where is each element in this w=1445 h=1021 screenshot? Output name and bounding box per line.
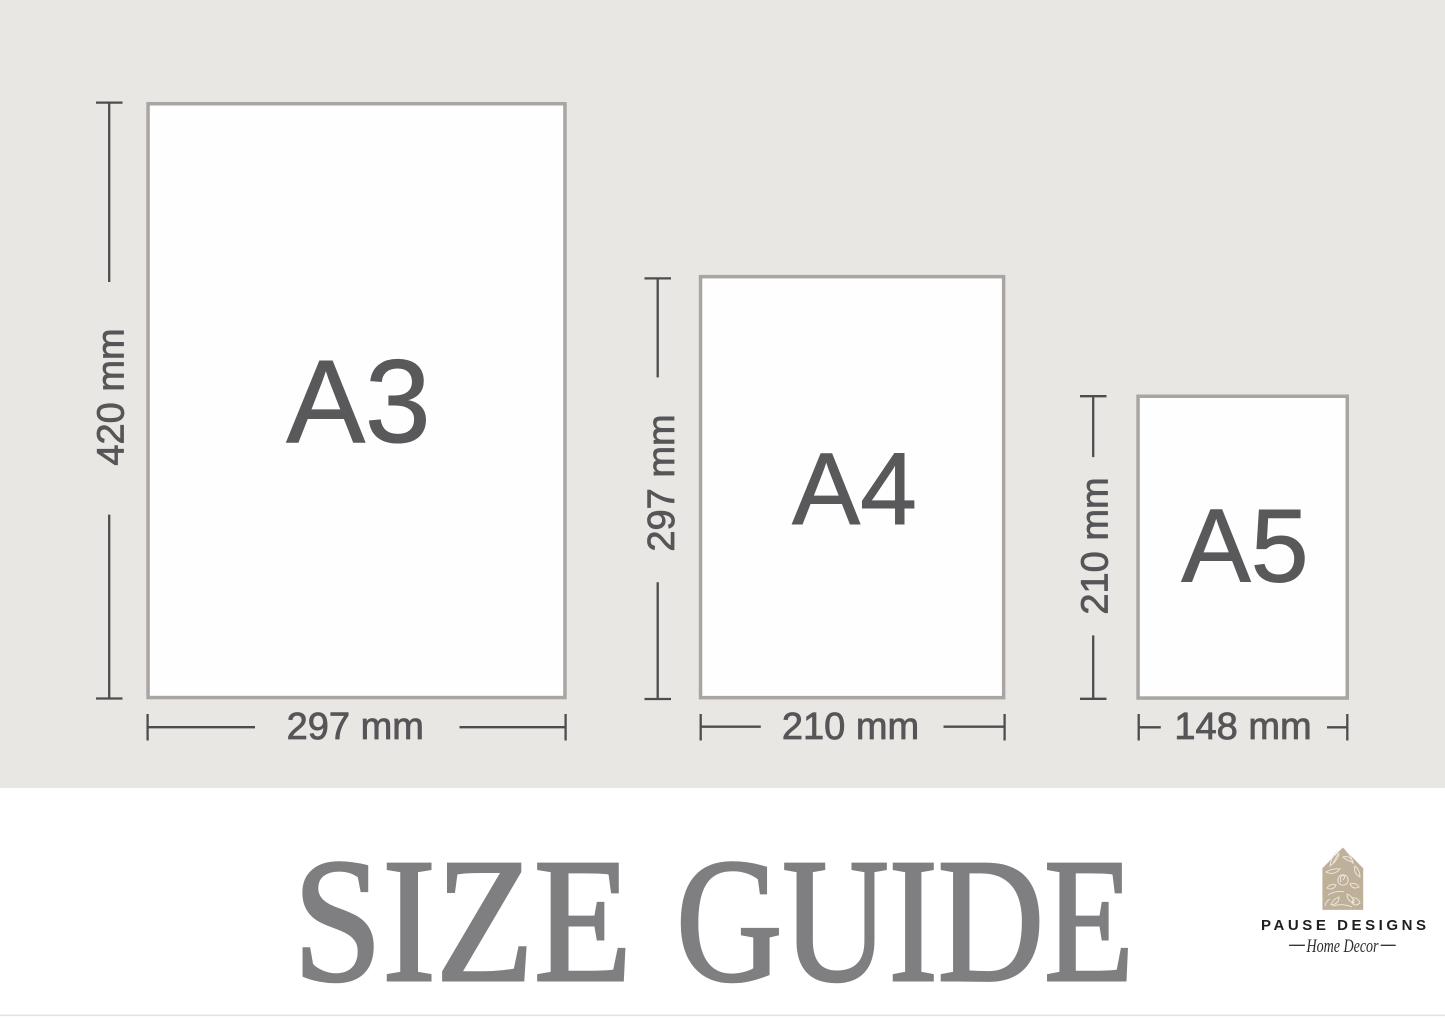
- svg-text:148 mm: 148 mm: [1174, 706, 1311, 748]
- svg-text:A5: A5: [1181, 489, 1308, 605]
- svg-text:PAUSE DESIGNS: PAUSE DESIGNS: [1261, 917, 1426, 934]
- svg-text:297 mm: 297 mm: [287, 706, 424, 748]
- svg-text:420 mm: 420 mm: [91, 328, 133, 465]
- svg-text:A3: A3: [286, 336, 430, 468]
- svg-text:A4: A4: [792, 432, 917, 546]
- svg-text:210 mm: 210 mm: [782, 706, 919, 748]
- svg-text:SIZE: SIZE: [293, 823, 632, 1019]
- svg-text:210 mm: 210 mm: [1075, 477, 1117, 614]
- svg-text:Home Decor: Home Decor: [1306, 936, 1379, 957]
- svg-text:GUIDE: GUIDE: [676, 823, 1134, 1019]
- svg-text:297 mm: 297 mm: [641, 414, 683, 551]
